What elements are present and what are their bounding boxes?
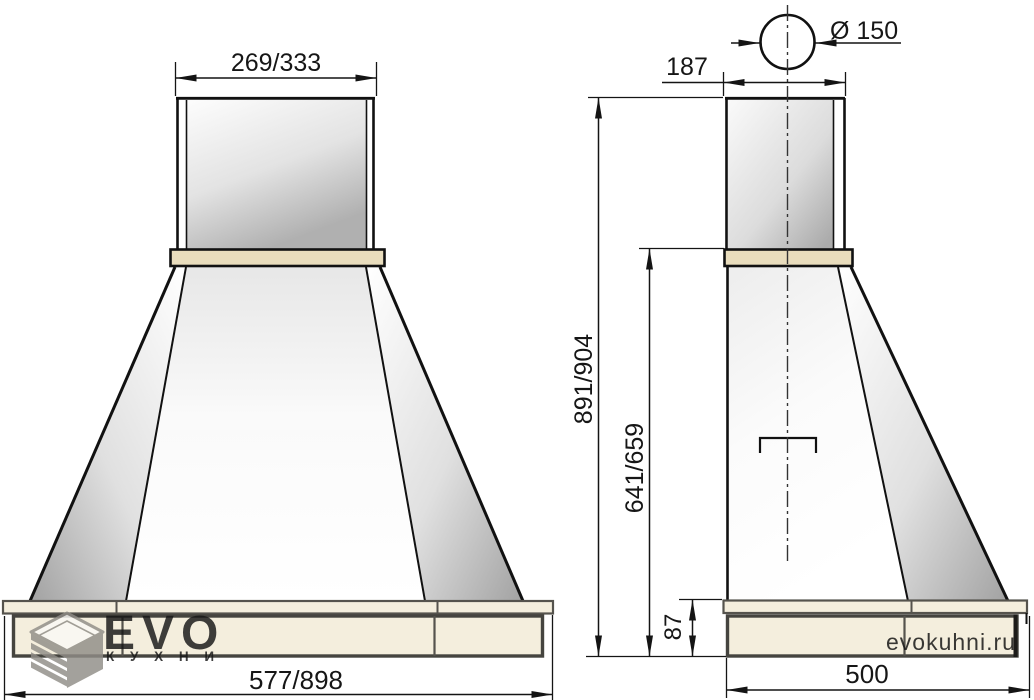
brand-logo: EVO К У Х Н И [31,607,225,688]
logo-subtitle: К У Х Н И [106,649,220,664]
front-chimney-panel [187,99,367,249]
hood-dimension-drawing: EVO К У Х Н И evokuhni.ru 269/333 Ø 150 … [0,0,1034,700]
dim-front-top-width-label: 269/333 [231,49,321,77]
dim-duct-diameter-label: Ø 150 [830,17,898,45]
site-watermark: evokuhni.ru [886,629,1016,655]
side-chimney-panel [728,99,833,249]
front-base-top-strip [3,601,553,614]
side-cornice-band [725,250,853,267]
dim-base-height-label: 87 [660,614,687,641]
front-canopy [30,266,523,601]
side-base-top-strip [724,601,1028,614]
dim-side-top-depth-label: 187 [666,53,708,81]
side-canopy [728,266,1009,601]
side-chimney [725,98,845,249]
dim-side-top-depth: 187 [662,53,846,96]
dim-front-bottom-width-label: 577/898 [249,665,343,695]
dim-side-bottom-depth-label: 500 [845,659,888,689]
dim-duct-diameter: Ø 150 [731,17,901,45]
dim-canopy-height-label: 641/659 [621,423,649,513]
front-chimney [176,98,375,249]
front-view [3,98,553,656]
dim-base-height: 87 [660,600,722,657]
dim-total-height-label: 891/904 [570,334,598,424]
dim-total-height: 891/904 [570,98,726,657]
side-view [724,5,1028,657]
dim-canopy-height: 641/659 [621,249,724,657]
dim-front-top-width: 269/333 [176,49,377,96]
front-cornice-band [171,250,385,267]
technical-drawing-page: EVO К У Х Н И evokuhni.ru 269/333 Ø 150 … [0,0,1034,700]
